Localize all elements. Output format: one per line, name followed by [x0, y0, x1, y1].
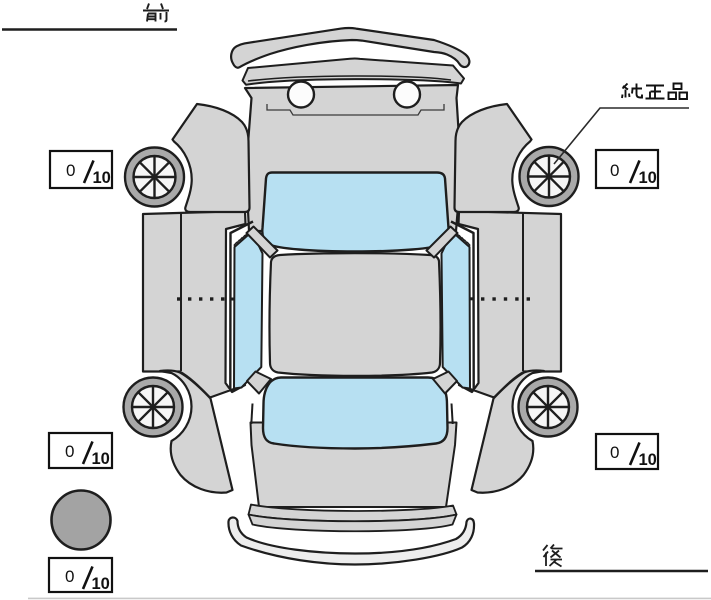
svg-text:0: 0 — [65, 567, 74, 586]
svg-text:10: 10 — [93, 169, 111, 187]
svg-text:0: 0 — [65, 442, 74, 461]
svg-text:0: 0 — [66, 161, 75, 180]
svg-text:10: 10 — [639, 169, 657, 187]
svg-text:10: 10 — [92, 450, 110, 468]
svg-text:0: 0 — [610, 443, 619, 462]
svg-text:0: 0 — [610, 161, 619, 180]
svg-text:10: 10 — [92, 575, 110, 593]
svg-text:10: 10 — [639, 451, 657, 469]
